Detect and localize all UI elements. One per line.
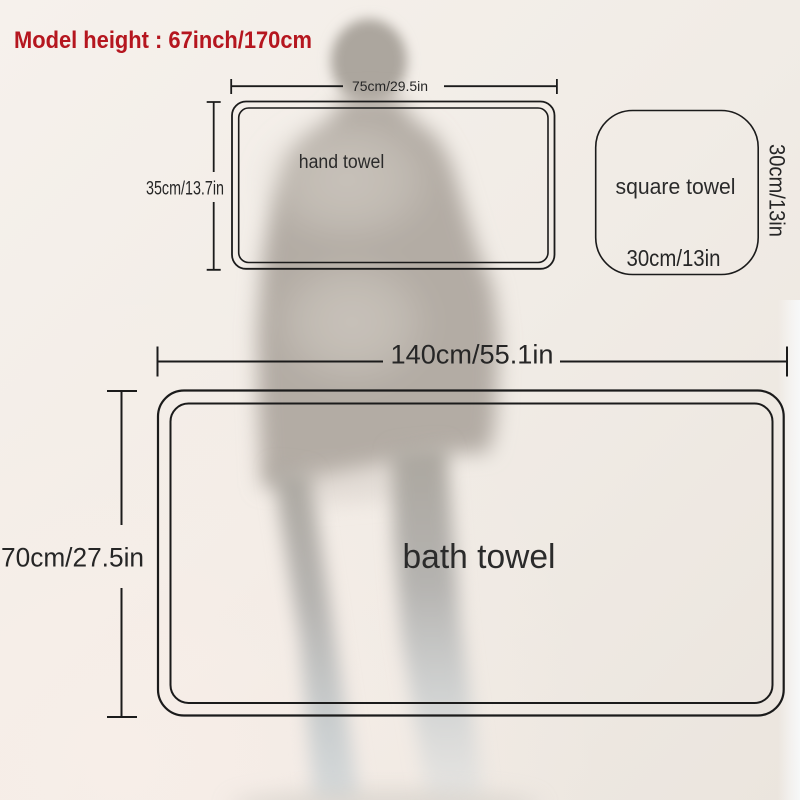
svg-text:35cm/13.7in: 35cm/13.7in bbox=[146, 178, 224, 199]
svg-text:bath towel: bath towel bbox=[403, 538, 556, 576]
svg-text:30cm/13in: 30cm/13in bbox=[627, 245, 721, 271]
svg-text:Model height : 67inch/170cm: Model height : 67inch/170cm bbox=[14, 27, 312, 54]
svg-text:140cm/55.1in: 140cm/55.1in bbox=[391, 340, 554, 370]
svg-text:75cm/29.5in: 75cm/29.5in bbox=[352, 79, 428, 94]
svg-text:30cm/13in: 30cm/13in bbox=[765, 144, 790, 237]
svg-text:square towel: square towel bbox=[616, 174, 736, 199]
svg-text:hand towel: hand towel bbox=[299, 152, 385, 173]
svg-text:70cm/27.5in: 70cm/27.5in bbox=[1, 542, 144, 572]
